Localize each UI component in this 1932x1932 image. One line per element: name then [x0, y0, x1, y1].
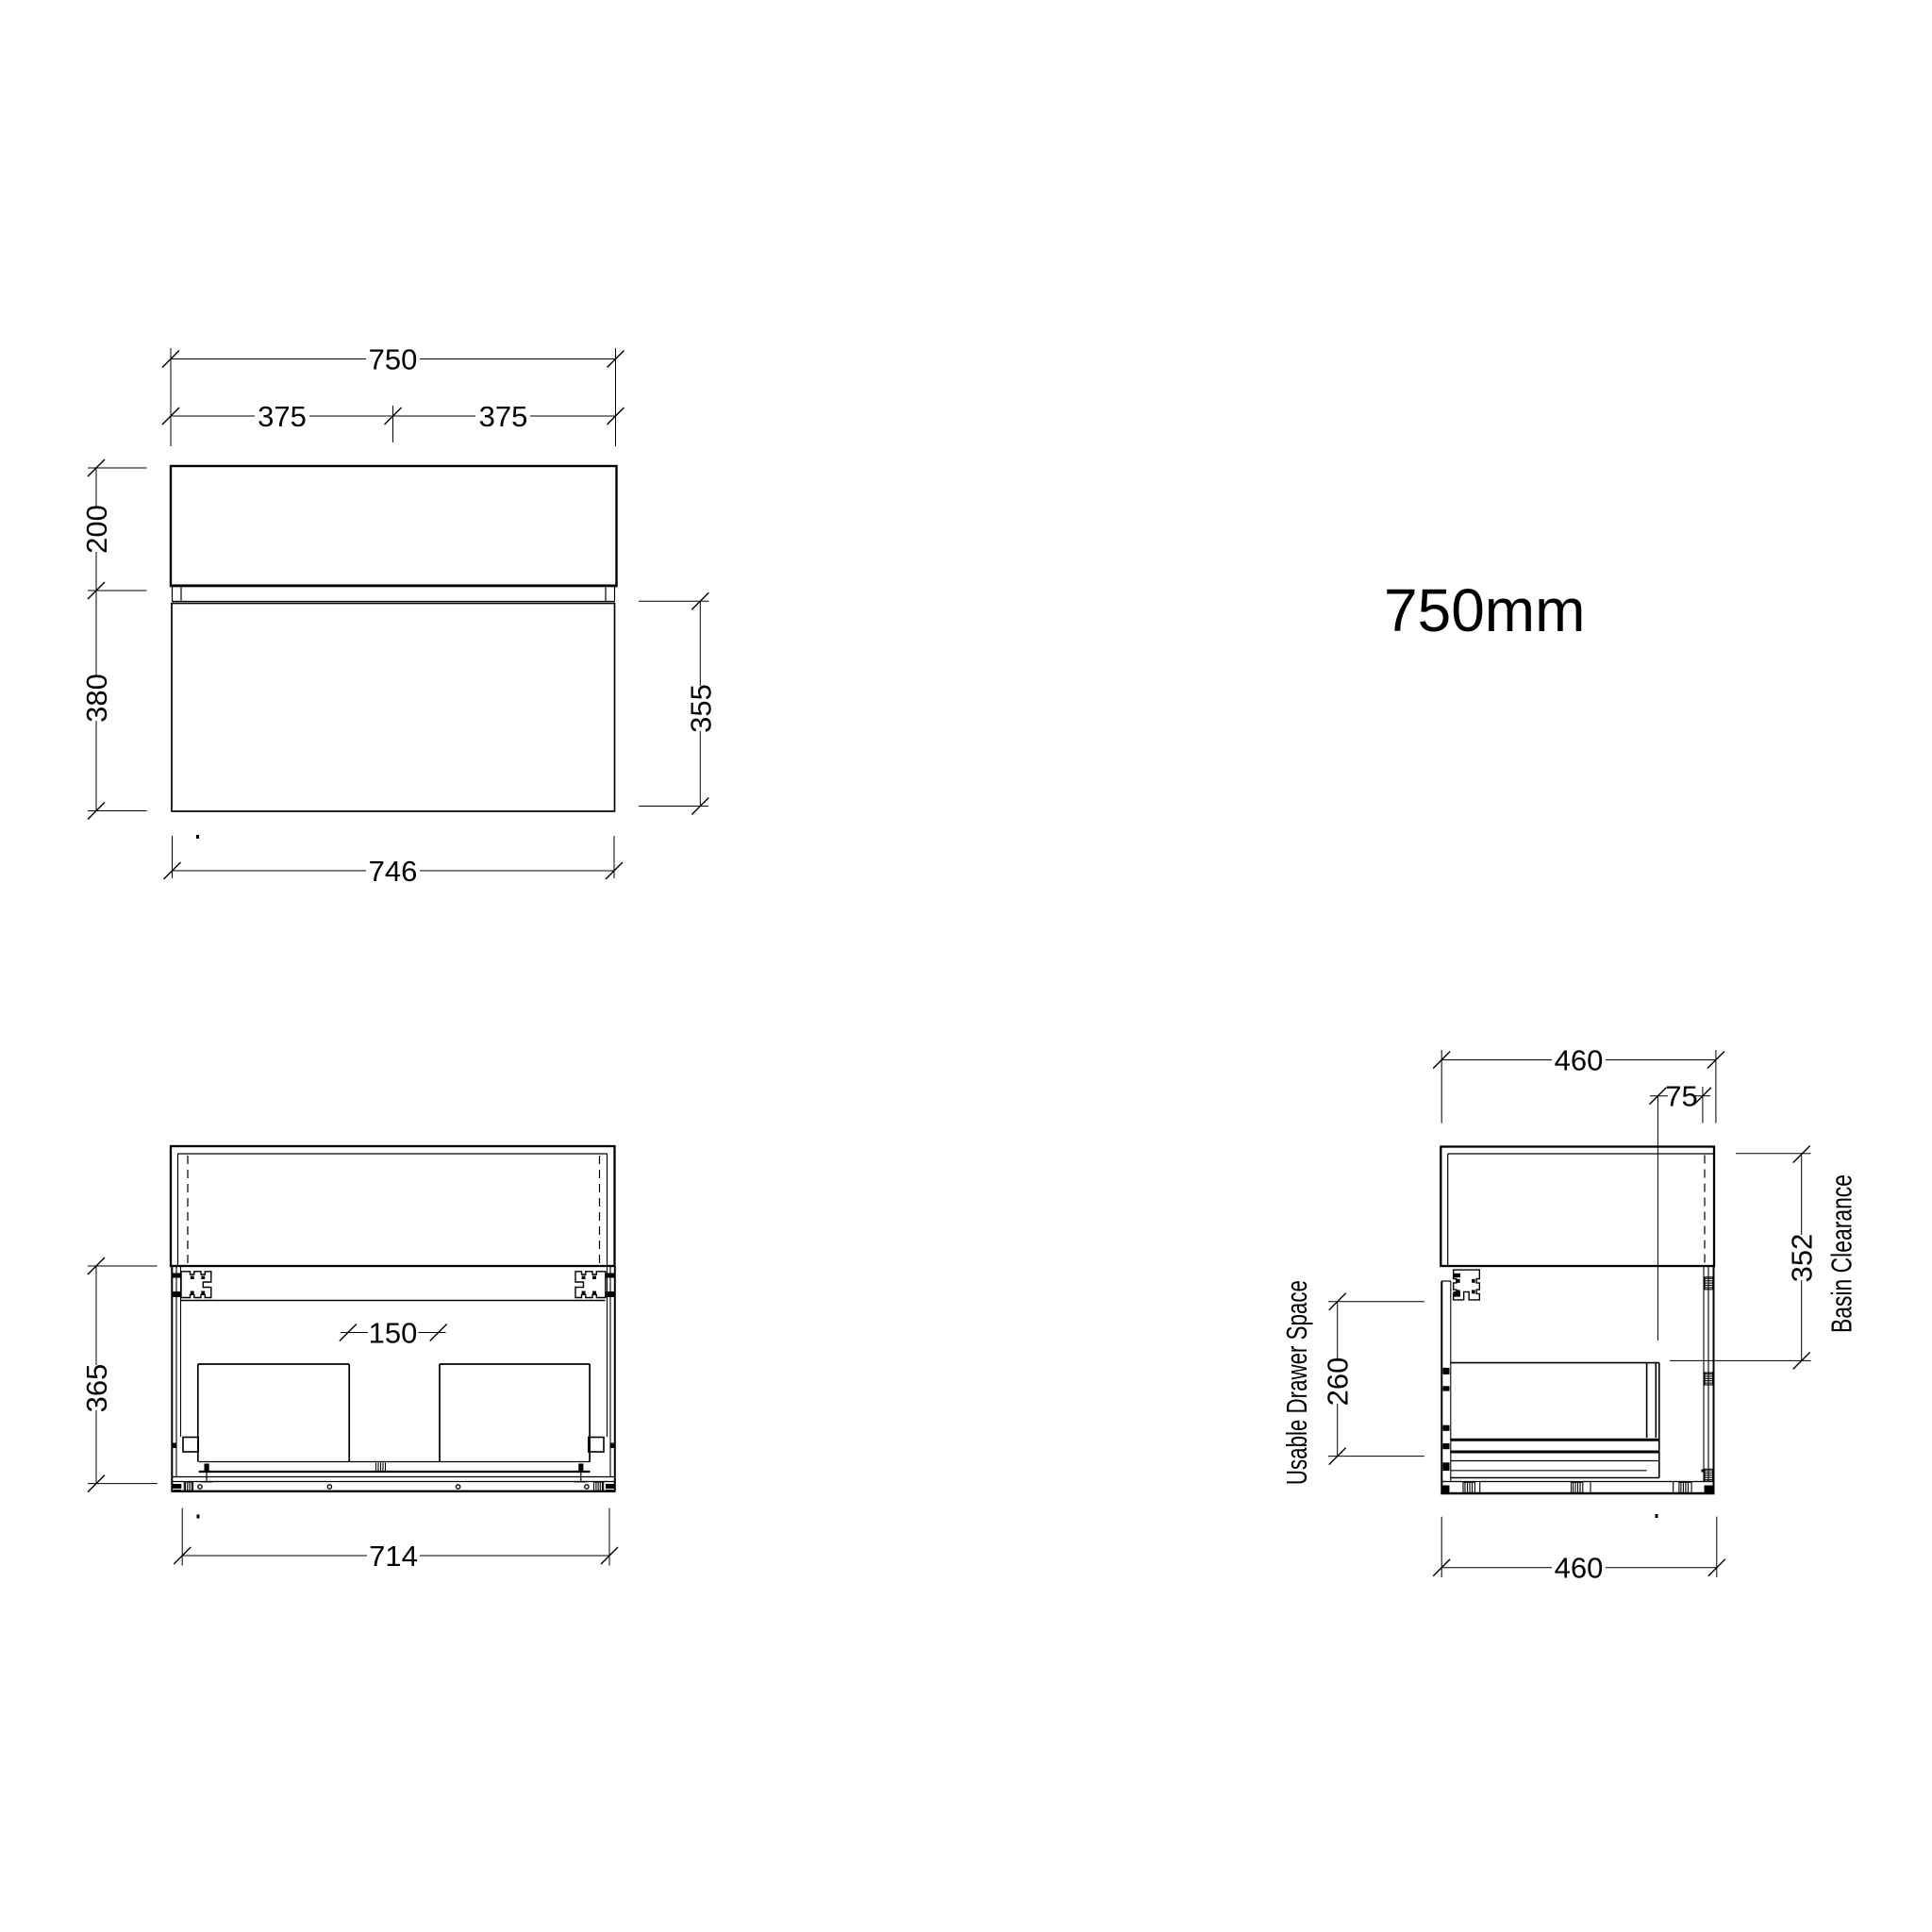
svg-text:375: 375 [479, 400, 528, 433]
svg-text:75: 75 [1665, 1080, 1697, 1113]
svg-text:365: 365 [80, 1364, 113, 1413]
svg-text:460: 460 [1555, 1044, 1604, 1077]
svg-text:750: 750 [369, 343, 418, 376]
svg-text:460: 460 [1555, 1552, 1604, 1585]
svg-text:375: 375 [258, 400, 307, 433]
svg-text:355: 355 [684, 684, 717, 733]
svg-text:Usable Drawer Space: Usable Drawer Space [1280, 1280, 1313, 1485]
svg-text:380: 380 [80, 674, 113, 723]
svg-text:714: 714 [369, 1540, 418, 1573]
svg-text:746: 746 [369, 855, 418, 888]
svg-text:352: 352 [1786, 1234, 1819, 1283]
svg-text:150: 150 [369, 1317, 418, 1350]
svg-text:260: 260 [1322, 1357, 1355, 1407]
svg-text:750mm: 750mm [1384, 576, 1585, 644]
svg-text:Basin Clearance: Basin Clearance [1825, 1174, 1858, 1333]
svg-text:200: 200 [80, 505, 113, 554]
